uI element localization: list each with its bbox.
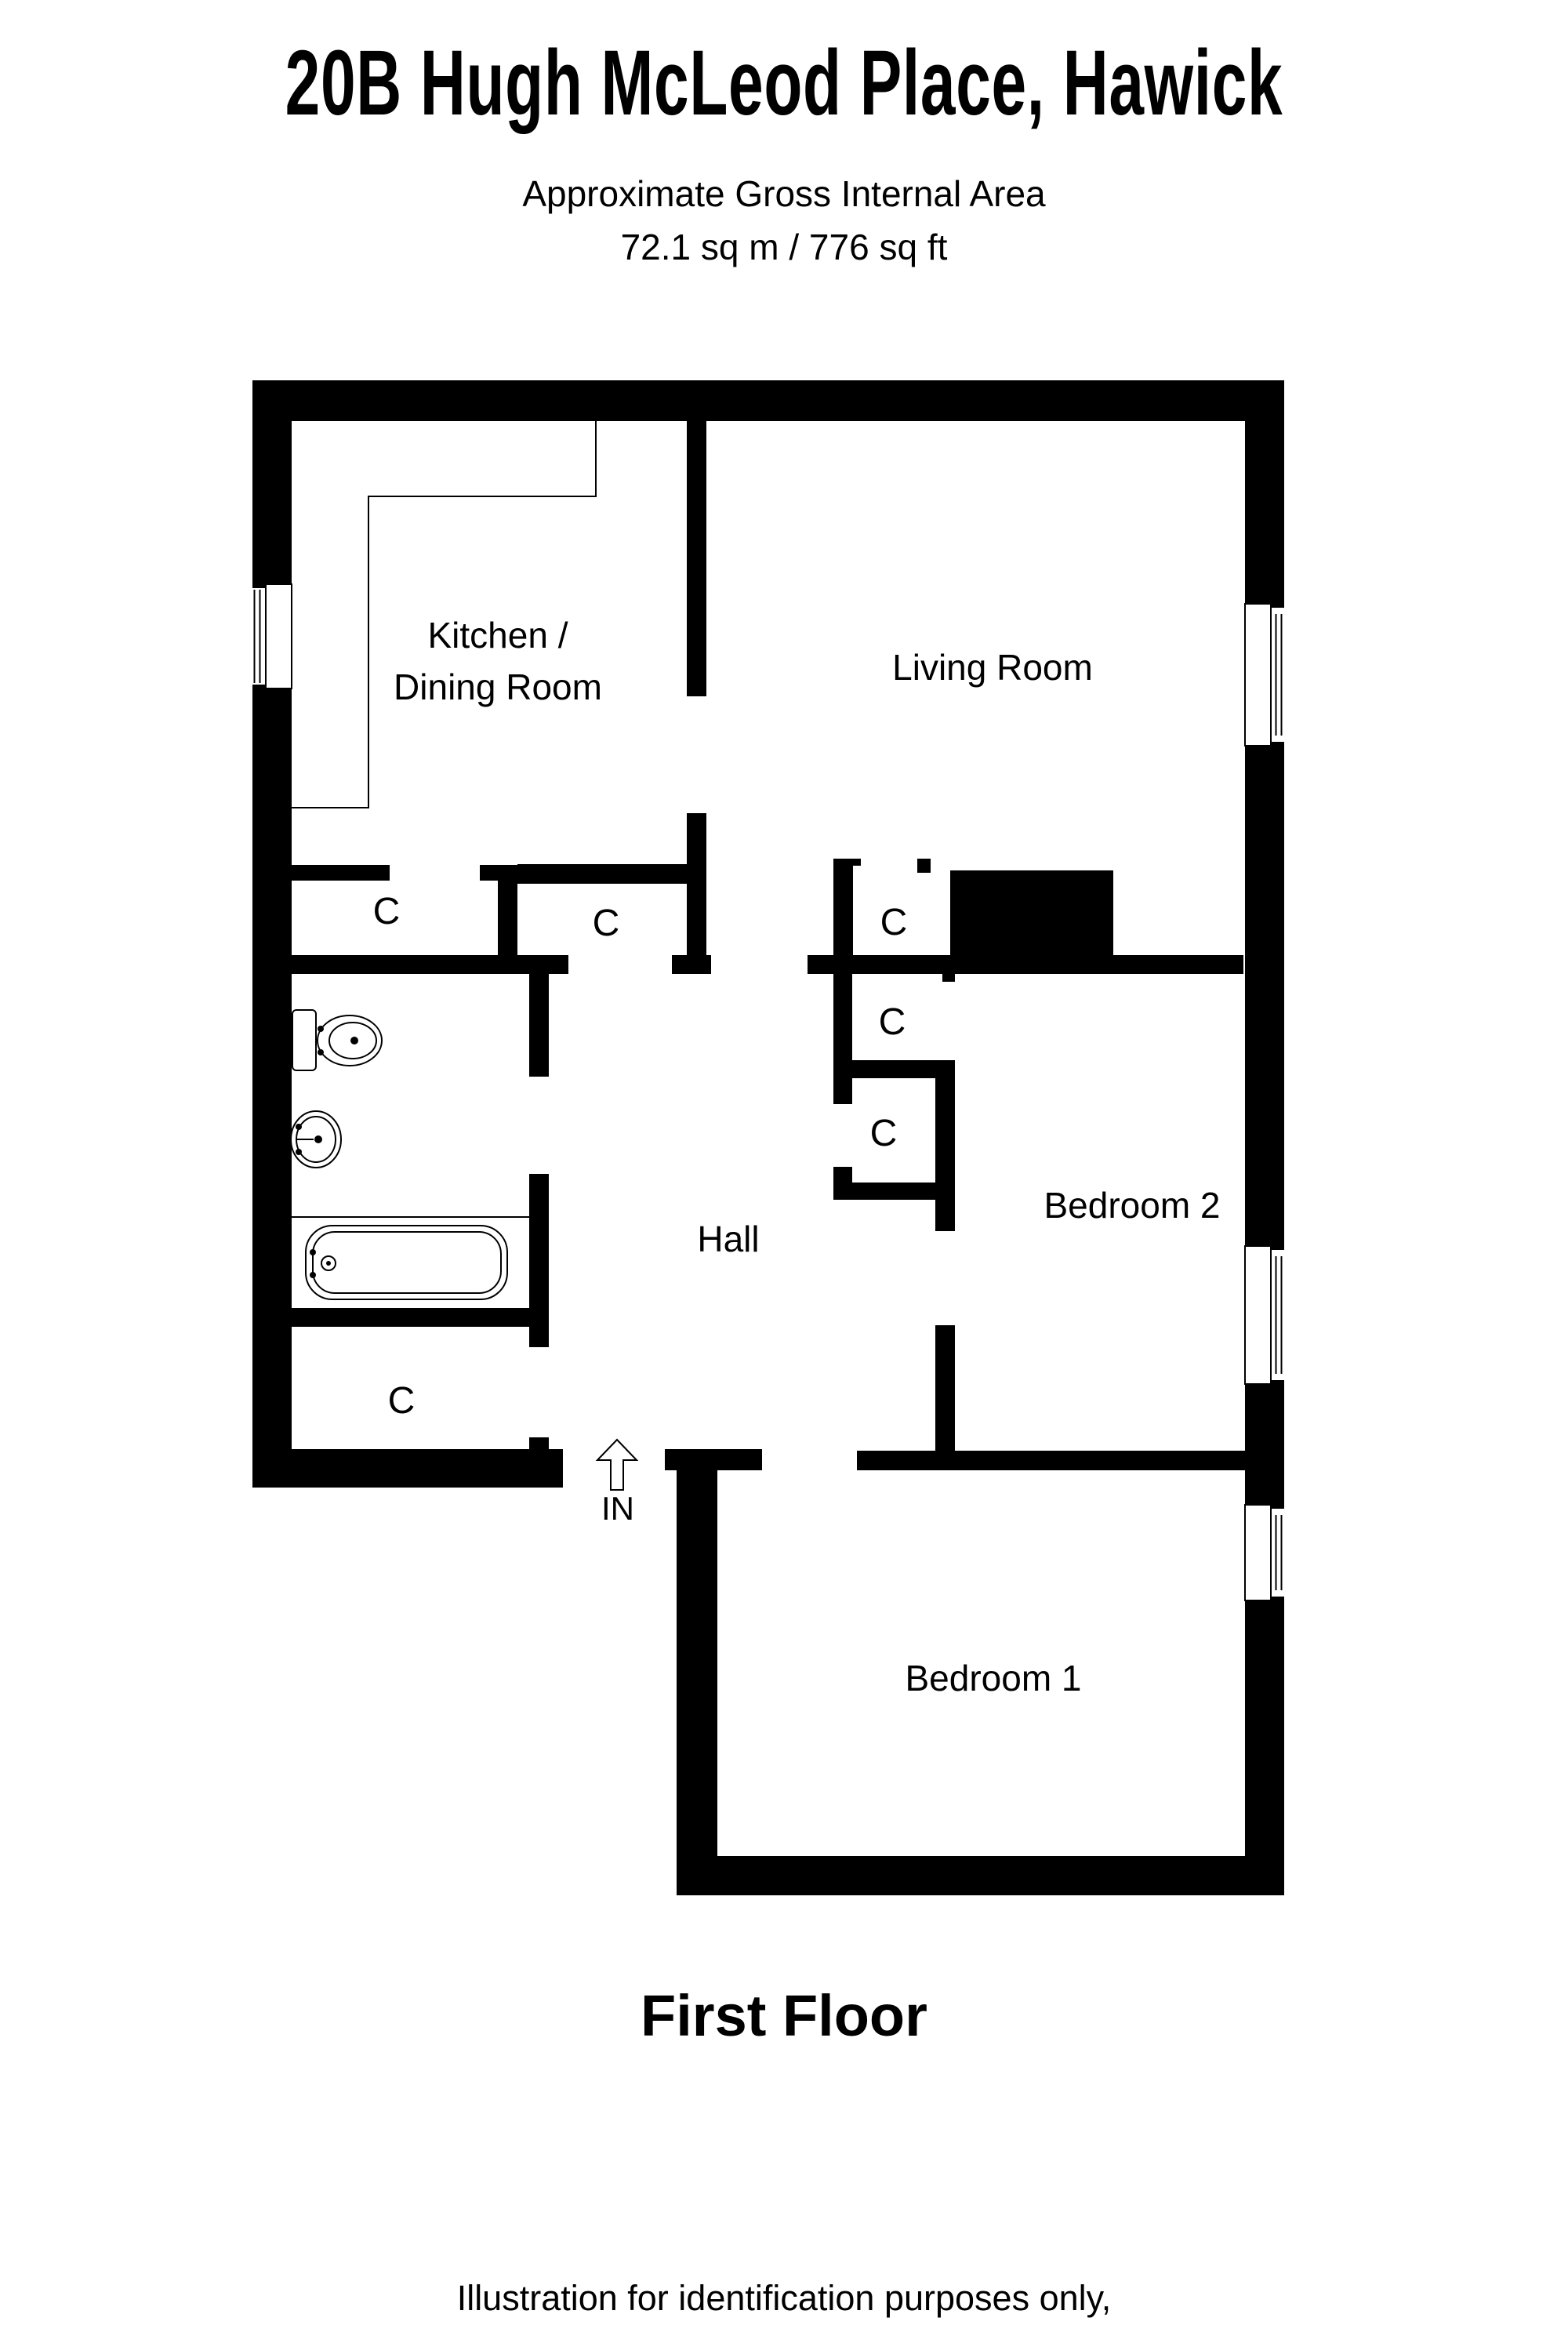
toilet-icon <box>292 1010 382 1070</box>
bathtub-icon <box>306 1226 507 1299</box>
room-label-living-room: Living Room <box>892 647 1093 688</box>
closet-label: C <box>373 891 401 932</box>
wall <box>1245 1380 1284 1509</box>
sink-icon <box>291 1111 341 1168</box>
wall <box>665 1449 762 1470</box>
closet-label: C <box>388 1380 416 1422</box>
walls <box>252 380 1284 1895</box>
floor-label: First Floor <box>0 1982 1568 2049</box>
wall <box>292 955 568 974</box>
wall <box>687 813 706 974</box>
entrance-label: IN <box>601 1490 634 1527</box>
room-label-bedroom1: Bedroom 1 <box>905 1658 1081 1698</box>
floorplan-page: 20B Hugh McLeod Place, Hawick Approximat… <box>0 0 1568 2336</box>
window-icon <box>1245 1246 1284 1384</box>
wall <box>1245 742 1284 1250</box>
wall <box>917 859 931 873</box>
wall <box>252 380 1284 421</box>
wall <box>252 421 292 588</box>
wall <box>935 1060 955 1231</box>
closet-label: C <box>879 1001 906 1043</box>
closet-label: C <box>870 1113 898 1154</box>
footer-line1: Illustration for identification purposes… <box>0 2274 1568 2323</box>
wall <box>833 859 861 866</box>
wall <box>292 1308 549 1327</box>
wall <box>857 1451 1245 1470</box>
window-icon <box>1245 1505 1284 1600</box>
wall <box>292 865 390 881</box>
wall <box>687 421 706 696</box>
wall <box>498 865 517 955</box>
room-label-kitchen-line2: Dining Room <box>394 667 602 707</box>
room-label-kitchen-line1: Kitchen / <box>428 615 568 656</box>
wall <box>672 955 711 974</box>
wall <box>833 1183 935 1200</box>
room-label-hall: Hall <box>697 1219 759 1259</box>
wall <box>529 974 549 1077</box>
entrance-arrow-icon <box>597 1440 637 1490</box>
footer: Illustration for identification purposes… <box>0 2177 1568 2336</box>
wall <box>529 1437 549 1449</box>
closet-label: C <box>880 902 908 943</box>
wall <box>1245 421 1284 608</box>
wall <box>833 859 853 955</box>
wall <box>677 1856 1284 1895</box>
closet-label: C <box>593 903 620 944</box>
wall <box>1245 1597 1284 1895</box>
wall <box>833 974 852 1104</box>
wall <box>252 685 292 1488</box>
wall <box>252 1449 563 1488</box>
window-icon <box>252 584 292 688</box>
room-label-bedroom2: Bedroom 2 <box>1044 1185 1220 1226</box>
wall <box>935 1325 955 1470</box>
wall <box>517 864 687 884</box>
window-icon <box>1245 604 1284 746</box>
wall <box>677 1470 717 1856</box>
chimney-block <box>950 870 1113 974</box>
wall <box>480 865 498 881</box>
wall <box>942 974 955 982</box>
